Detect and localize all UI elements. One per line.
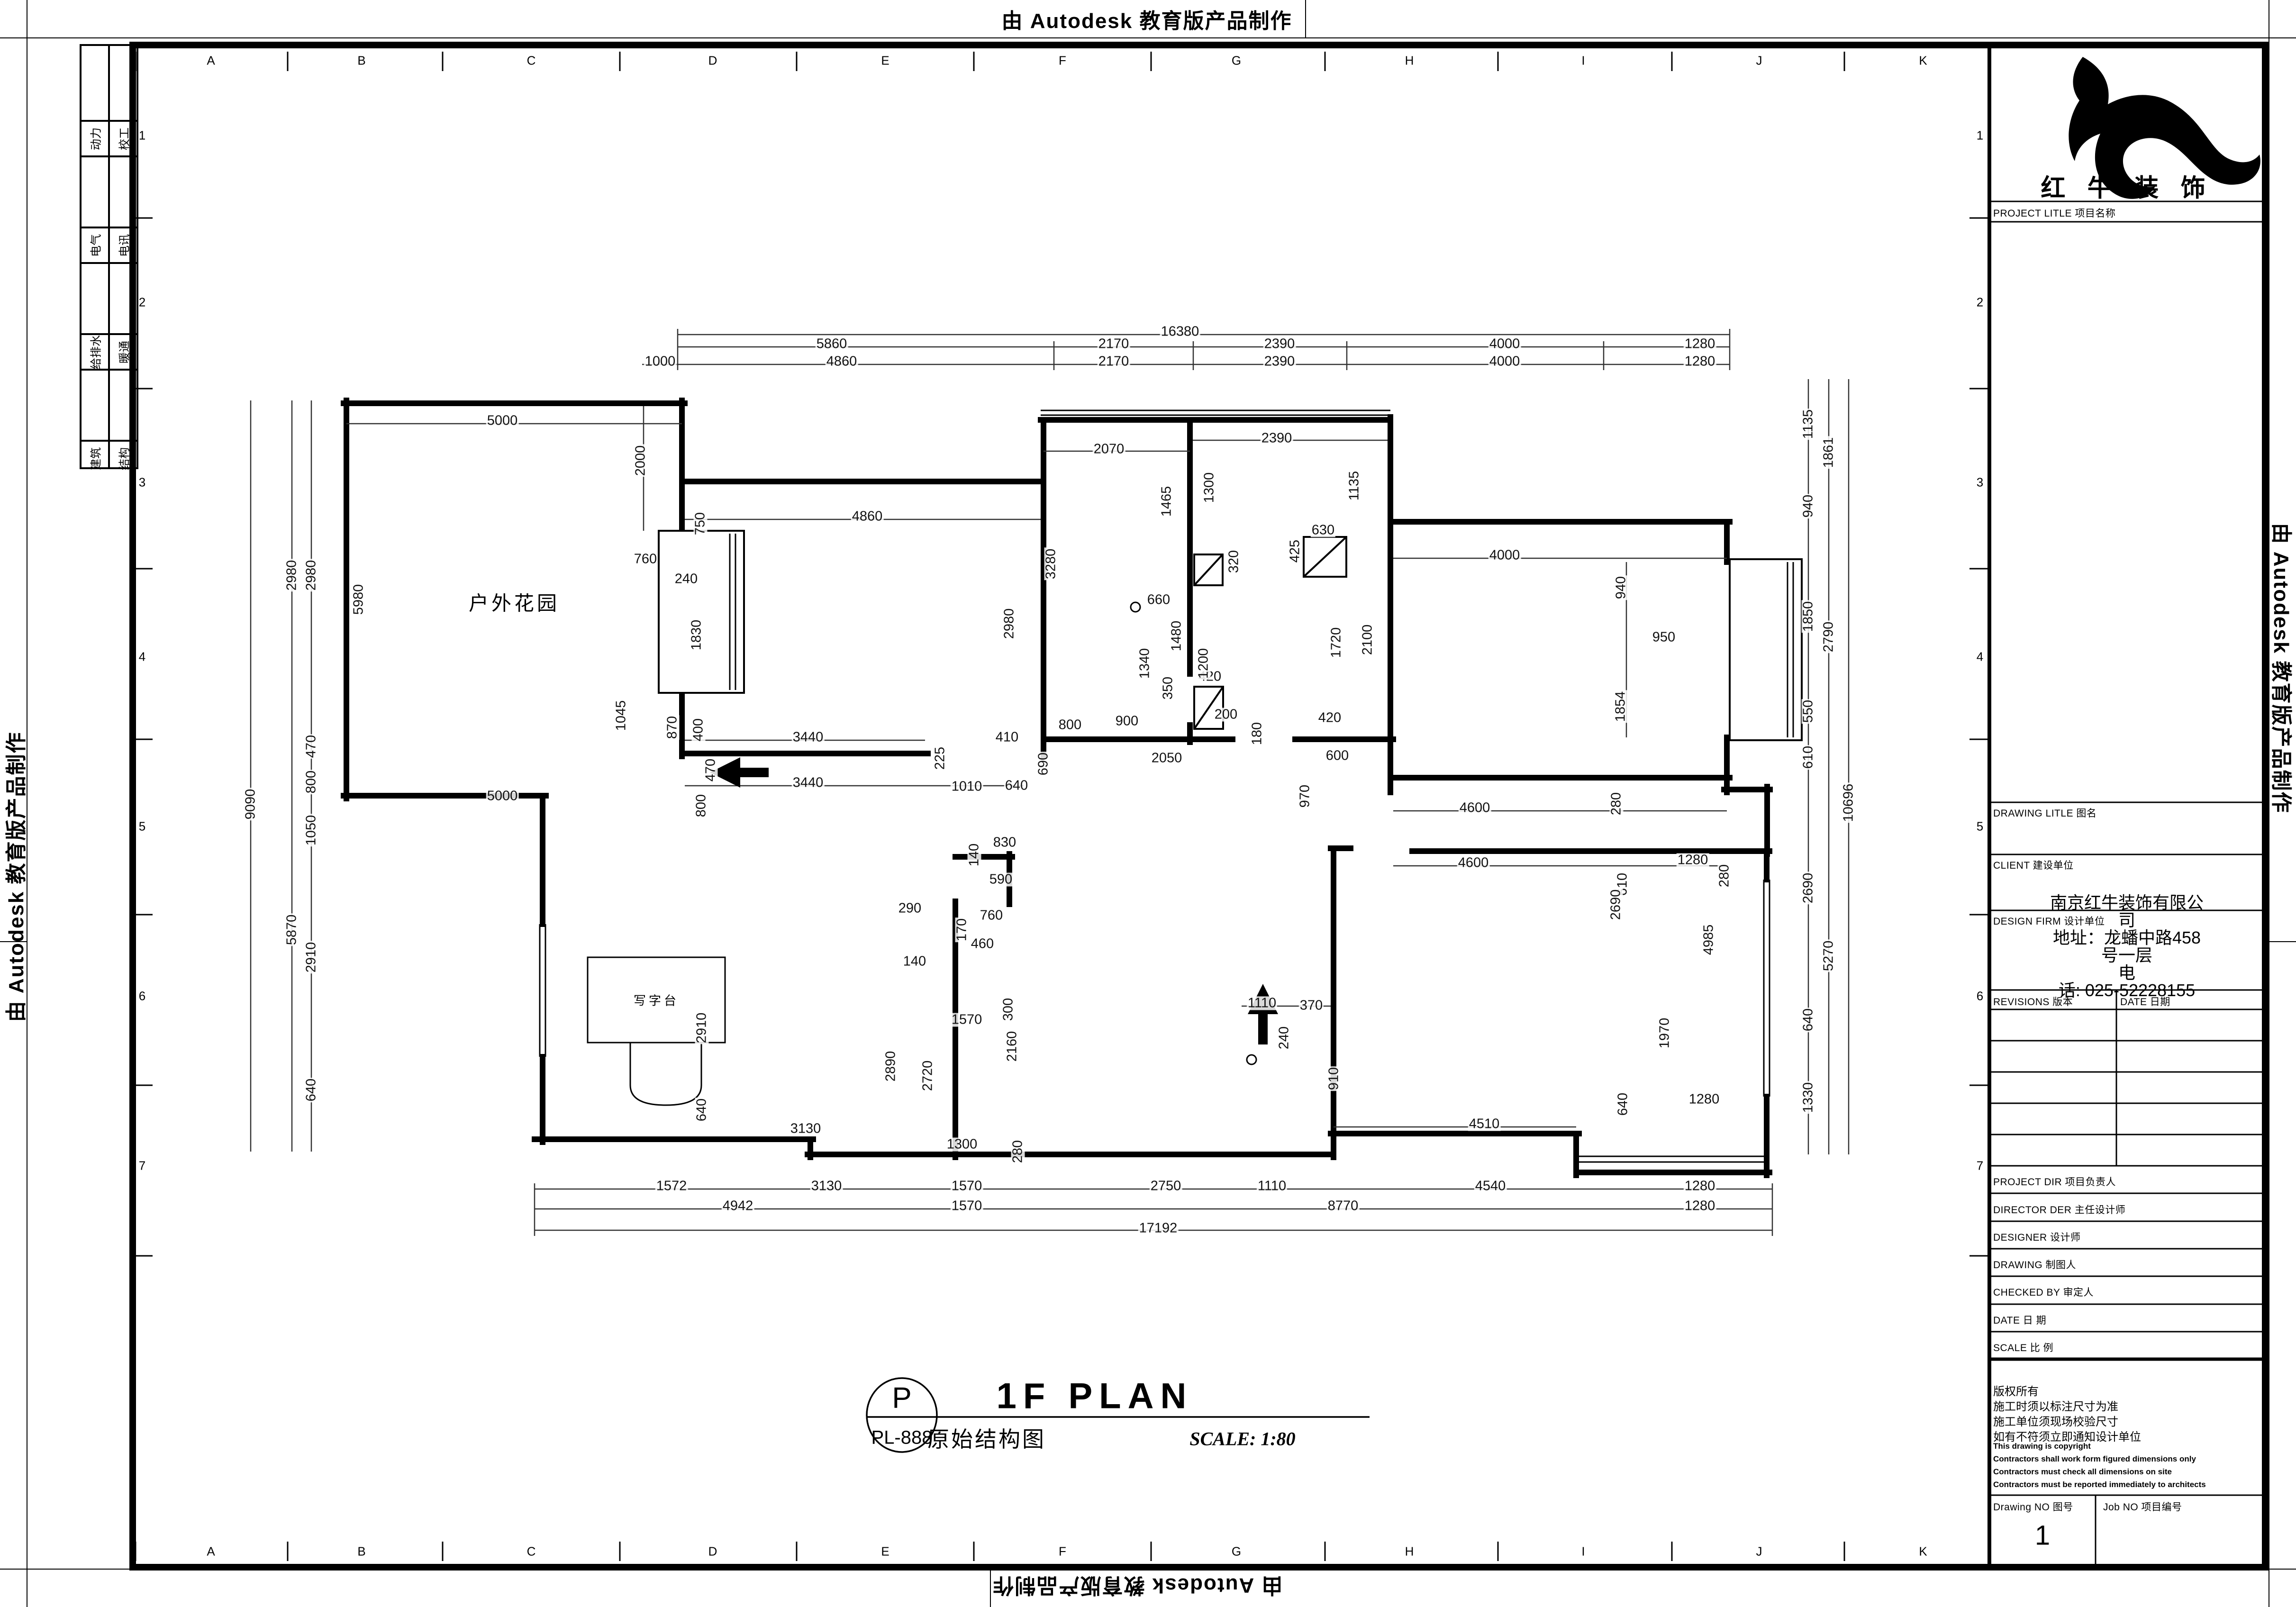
dimension-label: 1000 <box>644 355 677 369</box>
dimension-label: 2170 <box>1098 337 1130 351</box>
copyright-note: Contractors must check all dimensions on… <box>1993 1467 2172 1477</box>
grid-letter: G <box>1232 1544 1241 1559</box>
grid-number: 2 <box>1977 295 1983 310</box>
dimension-label: 1045 <box>615 699 628 732</box>
dimension-label: 3280 <box>1044 548 1058 581</box>
dimension-label: 290 <box>898 902 922 916</box>
dimension-label: 180 <box>1251 721 1264 746</box>
dimension-label: 140 <box>968 843 981 867</box>
dimension-label: 640 <box>1616 1092 1630 1117</box>
dimension-label: 800 <box>1058 718 1082 732</box>
grid-number: 3 <box>1977 475 1983 490</box>
title-block-grid <box>1989 201 2265 1567</box>
grid-letter: J <box>1756 54 1762 68</box>
copyright-note: 版权所有 <box>1993 1382 2039 1398</box>
titleblock-row-label: PROJECT DIR 项目负责人 <box>1993 1174 2116 1189</box>
dimension-label: 470 <box>305 734 318 759</box>
dimension-label: 1830 <box>690 619 704 652</box>
dimension-label: 5000 <box>486 790 519 803</box>
dimension-label: 2000 <box>634 445 648 477</box>
discipline-label: 结构 <box>115 447 132 470</box>
grid-number: 1 <box>139 128 145 143</box>
watermark-top: 由 Autodesk 教育版产品制作 <box>1002 4 1292 34</box>
dimension-label: 2050 <box>1151 752 1183 765</box>
grid-letter: E <box>881 1544 889 1559</box>
watermark-bottom: 由 Autodesk 教育版产品制作 <box>992 1572 1283 1603</box>
grid-letter: F <box>1059 1544 1066 1559</box>
dimension-label: 600 <box>1325 749 1350 763</box>
dimension-label: 3130 <box>810 1180 843 1193</box>
titleblock-row-label: SCALE 比 例 <box>1993 1340 2053 1354</box>
titleblock-row-label: DESIGNER 设计师 <box>1993 1230 2081 1244</box>
dimension-label: 5000 <box>486 414 519 428</box>
dimension-label: 1300 <box>946 1138 979 1152</box>
room-label: 写字台 <box>634 991 679 1009</box>
cad-linework <box>0 0 2296 1607</box>
dimension-label: 2390 <box>1263 337 1296 351</box>
grid-number: 4 <box>1977 650 1983 664</box>
grid-number: 5 <box>139 819 145 834</box>
dimension-label: 640 <box>1802 1008 1815 1032</box>
grid-letter: H <box>1405 1544 1414 1559</box>
dimension-label: 760 <box>979 909 1004 923</box>
dimension-label: 1010 <box>951 780 983 794</box>
dimension-label: 1050 <box>305 814 318 847</box>
dimension-label: 5870 <box>285 914 299 946</box>
dimension-label: 4942 <box>722 1199 754 1213</box>
dimension-label: 2980 <box>305 559 318 592</box>
copyright-note: 施工单位须现场校验尺寸 <box>1993 1412 2118 1429</box>
dimension-label: 630 <box>1311 524 1335 537</box>
dimension-label: 760 <box>633 553 658 566</box>
dimension-label: 1340 <box>1138 647 1152 680</box>
dimension-label: 1280 <box>1688 1093 1721 1107</box>
dimension-label: 1200 <box>1197 647 1211 680</box>
dimension-label: 900 <box>1115 715 1139 728</box>
dimension-label: 470 <box>704 758 718 782</box>
dimension-label: 2690 <box>1802 872 1815 905</box>
dimension-label: 280 <box>1718 863 1732 888</box>
grid-letter: H <box>1405 54 1414 68</box>
grid-letter: D <box>708 54 717 68</box>
watermark-left: 由 Autodesk 教育版产品制作 <box>0 732 29 1022</box>
dimension-label: 1570 <box>951 1013 983 1027</box>
project-title-label: PROJECT LITLE 项目名称 <box>1993 206 2115 220</box>
grid-letter: F <box>1059 54 1066 68</box>
dimension-label: 4600 <box>1459 801 1491 815</box>
dimension-label: 550 <box>1802 699 1815 724</box>
dimension-label: 2910 <box>305 941 318 974</box>
grid-letter: C <box>527 1544 536 1559</box>
watermark-right: 由 Autodesk 教育版产品制作 <box>2268 523 2296 814</box>
dimension-label: 690 <box>1037 752 1051 776</box>
grid-number: 6 <box>1977 989 1983 1004</box>
detail-symbol-letter: P <box>892 1381 911 1415</box>
discipline-label: 电气 <box>87 234 103 257</box>
dimension-label: 1970 <box>1658 1017 1672 1050</box>
grid-number: 6 <box>139 989 145 1004</box>
dimension-label: 4860 <box>826 355 858 369</box>
discipline-label: 电讯 <box>115 234 132 257</box>
dimension-label: 4510 <box>1468 1117 1501 1131</box>
dimension-label: 1720 <box>1330 626 1343 659</box>
grid-letter: I <box>1581 1544 1585 1559</box>
dimension-label: 800 <box>695 793 708 818</box>
dimension-label: 5860 <box>816 337 848 351</box>
dimension-label: 1465 <box>1160 485 1174 518</box>
dimension-label: 1854 <box>1614 690 1628 723</box>
dimension-label: 970 <box>1298 784 1312 808</box>
dimension-label: 590 <box>989 873 1013 887</box>
grid-letter: G <box>1232 54 1241 68</box>
client-label: CLIENT 建设单位 <box>1993 858 2074 872</box>
copyright-note: This drawing is copyright <box>1993 1442 2091 1451</box>
dimension-label: 830 <box>992 836 1017 850</box>
grid-number: 5 <box>1977 819 1983 834</box>
dimension-label: 1280 <box>1684 1180 1716 1193</box>
dimension-label: 16380 <box>1160 325 1200 339</box>
entry-arrow-icons <box>710 757 1278 1044</box>
dimension-label: 170 <box>955 917 969 942</box>
dimension-label: 2980 <box>285 559 299 592</box>
dimension-label: 1570 <box>951 1180 983 1193</box>
grid-letter: B <box>357 54 365 68</box>
dimension-label: 200 <box>1214 708 1238 722</box>
dimension-label: 410 <box>995 731 1019 744</box>
dimension-label: 2910 <box>695 1012 709 1044</box>
drawing-no-label: Drawing NO 图号 <box>1993 1499 2073 1514</box>
dimension-label: 3440 <box>792 731 825 744</box>
drawing-no-value: 1 <box>2035 1520 2050 1552</box>
dimension-label: 17192 <box>1138 1222 1179 1235</box>
grid-letter: B <box>357 1544 365 1559</box>
dimension-label: 1280 <box>1684 337 1716 351</box>
dimension-label: 9090 <box>244 788 258 821</box>
dimension-label: 2170 <box>1098 355 1130 369</box>
dimension-label: 800 <box>305 770 318 794</box>
dimension-label: 1572 <box>655 1180 688 1193</box>
drawing-title-label: DRAWING LITLE 图名 <box>1993 806 2096 820</box>
dimension-label: 940 <box>1802 494 1815 518</box>
dimension-label: 910 <box>1327 1066 1341 1091</box>
discipline-label: 动力 <box>87 127 103 150</box>
dimension-label: 10696 <box>1842 783 1856 823</box>
grid-ticks <box>133 52 1989 1561</box>
discipline-label: 给排水 <box>87 335 103 369</box>
dimension-label: 1861 <box>1822 436 1836 469</box>
drawing-sheet: 由 Autodesk 教育版产品制作 由 Autodesk 教育版产品制作 由 … <box>0 0 2296 1607</box>
dimension-label: 240 <box>1278 1026 1291 1050</box>
dimension-label: 2720 <box>921 1060 935 1092</box>
date-small-label: DATE 日期 <box>2120 994 2170 1008</box>
dimension-label: 2160 <box>1006 1030 1019 1063</box>
titleblock-row-label: DIRECTOR DER 主任设计师 <box>1993 1202 2125 1217</box>
dimension-label: 660 <box>1146 593 1171 607</box>
dimension-label: 240 <box>674 572 699 586</box>
grid-letter: E <box>881 54 889 68</box>
company-logo-text: 红 牛 装 饰 <box>2041 168 2213 204</box>
grid-number: 3 <box>139 475 145 490</box>
plan-scale: SCALE: 1:80 <box>1189 1428 1295 1450</box>
copyright-note: Contractors must be reported immediately… <box>1993 1480 2206 1489</box>
dimension-label: 280 <box>1011 1139 1025 1164</box>
plan-title-cn: 原始结构图 <box>927 1422 1046 1453</box>
grid-letter: I <box>1581 54 1585 68</box>
dimension-label: 1280 <box>1677 853 1709 867</box>
dimension-label: 750 <box>694 511 708 536</box>
grid-letter: A <box>207 54 215 68</box>
plan-walls <box>344 400 1770 1175</box>
dimension-label: 3130 <box>790 1122 822 1136</box>
dimension-label: 300 <box>1002 997 1016 1022</box>
dimension-label: 5270 <box>1822 940 1836 972</box>
dimension-label: 640 <box>305 1078 318 1102</box>
dimension-label: 350 <box>1162 676 1175 700</box>
grid-letter: C <box>527 54 536 68</box>
dimension-label: 400 <box>692 717 706 742</box>
discipline-label: 建筑 <box>87 447 103 470</box>
design-firm-label: DESIGN FIRM 设计单位 <box>1993 914 2105 928</box>
grid-letter: A <box>207 1544 215 1559</box>
grid-number: 2 <box>139 295 145 310</box>
grid-number: 4 <box>139 650 145 664</box>
grid-letter: D <box>708 1544 717 1559</box>
dimension-label: 940 <box>1615 575 1628 600</box>
dimension-label: 950 <box>1652 631 1676 645</box>
room-label: 户外花园 <box>469 588 560 617</box>
dimension-label: 3440 <box>792 776 825 790</box>
dimension-label: 1135 <box>1802 409 1815 440</box>
dimension-label: 2690 <box>1609 889 1623 921</box>
dimension-label: 4600 <box>1457 856 1490 870</box>
grid-number: 1 <box>1977 128 1983 143</box>
dimension-label: 225 <box>934 746 947 771</box>
drawing-code: PL-888 <box>871 1427 933 1449</box>
dimension-label: 4860 <box>851 510 884 524</box>
dimension-label: 4000 <box>1488 355 1521 369</box>
job-no-label: Job NO 项目编号 <box>2103 1499 2182 1514</box>
revisions-label: REVISIONS 版本 <box>1993 994 2073 1008</box>
titleblock-row-label: DATE 日 期 <box>1993 1313 2046 1327</box>
dimension-label: 1110 <box>1247 997 1277 1010</box>
dimension-label: 4540 <box>1474 1180 1507 1193</box>
copyright-note: Contractors shall work form figured dime… <box>1993 1454 2196 1464</box>
dimension-label: 140 <box>902 955 927 969</box>
dimension-label: 320 <box>1227 549 1241 574</box>
titleblock-row-label: DRAWING 制图人 <box>1993 1257 2076 1271</box>
dimension-label: 1570 <box>951 1199 983 1213</box>
dimension-lines <box>251 329 1849 1236</box>
dimension-label: 1330 <box>1802 1081 1815 1114</box>
dimension-label: 1850 <box>1802 600 1815 633</box>
dimension-label: 640 <box>695 1098 709 1122</box>
dimension-label: 425 <box>1289 539 1302 563</box>
copyright-note: 施工时须以标注尺寸为准 <box>1993 1397 2118 1414</box>
dimension-label: 280 <box>1610 791 1624 816</box>
dimension-label: 640 <box>1004 779 1029 793</box>
dimension-label: 610 <box>1802 745 1815 770</box>
dimension-label: 2980 <box>1003 608 1016 640</box>
dimension-label: 870 <box>666 715 680 740</box>
dimension-label: 2070 <box>1093 443 1125 456</box>
grid-number: 7 <box>1977 1159 1983 1173</box>
dimension-label: 2790 <box>1822 621 1836 654</box>
dimension-label: 1480 <box>1170 620 1184 653</box>
dimension-label: 2100 <box>1361 624 1375 656</box>
discipline-label: 暖通 <box>115 341 132 363</box>
dimension-label: 1135 <box>1348 470 1361 501</box>
dimension-label: 2890 <box>884 1050 898 1083</box>
grid-letter: J <box>1756 1544 1762 1559</box>
dimension-label: 420 <box>1317 711 1342 725</box>
grid-letter: K <box>1919 1544 1927 1559</box>
dimension-label: 8770 <box>1327 1199 1360 1213</box>
dimension-label: 2390 <box>1261 432 1293 445</box>
discipline-label: 校工 <box>115 127 132 150</box>
grid-number: 7 <box>139 1159 145 1173</box>
grid-letter: K <box>1919 54 1927 68</box>
dimension-label: 460 <box>970 937 995 951</box>
dimension-label: 5980 <box>352 583 366 616</box>
titleblock-row-label: CHECKED BY 审定人 <box>1993 1285 2094 1299</box>
dimension-label: 4000 <box>1488 549 1521 563</box>
dimension-label: 370 <box>1299 999 1324 1013</box>
dimension-label: 1110 <box>1257 1180 1287 1193</box>
dimension-label: 1280 <box>1684 1199 1716 1213</box>
plan-title: 1F PLAN <box>997 1376 1193 1417</box>
dimension-label: 2390 <box>1263 355 1296 369</box>
dimension-label: 1280 <box>1684 355 1716 369</box>
dimension-label: 1300 <box>1203 472 1216 504</box>
dimension-label: 4000 <box>1488 337 1521 351</box>
dimension-label: 4985 <box>1702 924 1716 956</box>
dimension-label: 2750 <box>1150 1180 1182 1193</box>
